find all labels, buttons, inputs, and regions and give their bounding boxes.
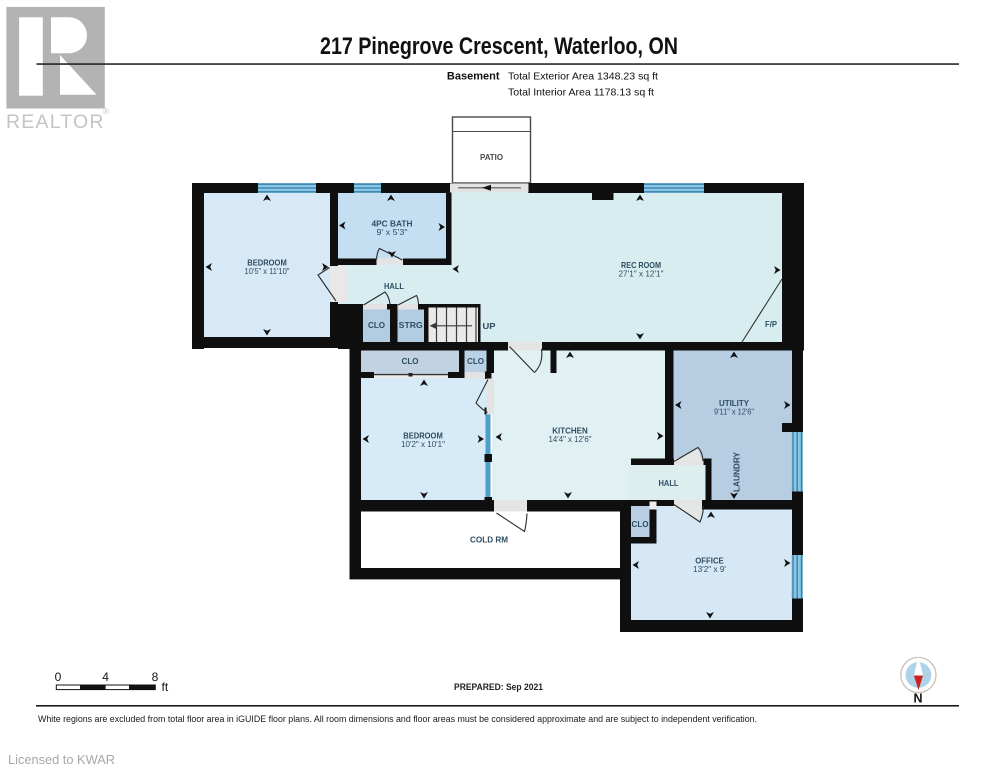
svg-text:Total Exterior Area 1348.23 sq: Total Exterior Area 1348.23 sq ft [508, 72, 658, 83]
svg-text:217 Pinegrove Crescent, Waterl: 217 Pinegrove Crescent, Waterloo, ON [320, 33, 678, 60]
svg-text:9' x 5'3": 9' x 5'3" [377, 227, 408, 237]
svg-text:PATIO: PATIO [480, 153, 503, 162]
svg-text:STRG: STRG [399, 320, 423, 330]
svg-text:ft: ft [162, 680, 169, 694]
svg-text:CLO: CLO [632, 519, 649, 529]
svg-text:White regions are excluded fro: White regions are excluded from total fl… [38, 714, 757, 724]
svg-text:CLO: CLO [402, 356, 419, 366]
svg-text:HALL: HALL [384, 281, 404, 291]
svg-text:8: 8 [152, 670, 159, 684]
svg-text:F/P: F/P [765, 320, 778, 329]
svg-text:CLO: CLO [467, 356, 484, 366]
svg-text:Basement: Basement [447, 71, 500, 83]
svg-text:LAUNDRY: LAUNDRY [732, 452, 742, 492]
svg-text:0: 0 [55, 670, 62, 684]
svg-text:10'5" x 11'10": 10'5" x 11'10" [245, 266, 290, 276]
svg-text:N: N [913, 692, 922, 706]
svg-text:®: ® [103, 107, 109, 116]
svg-text:COLD RM: COLD RM [470, 535, 508, 545]
svg-text:REALTOR: REALTOR [6, 111, 105, 133]
svg-text:Total Interior Area 1178.13 sq: Total Interior Area 1178.13 sq ft [508, 88, 654, 99]
svg-text:27'1" x 12'1": 27'1" x 12'1" [619, 268, 664, 278]
svg-text:14'4" x 12'6": 14'4" x 12'6" [549, 434, 592, 444]
svg-text:UP: UP [483, 321, 496, 331]
svg-text:CLO: CLO [368, 320, 385, 330]
svg-text:13'2" x 9': 13'2" x 9' [693, 564, 726, 574]
svg-text:PREPARED: Sep 2021: PREPARED: Sep 2021 [454, 682, 543, 692]
svg-text:Licensed to KWAR: Licensed to KWAR [8, 752, 115, 767]
svg-text:4: 4 [102, 670, 109, 684]
svg-text:9'11" x 12'6": 9'11" x 12'6" [714, 407, 754, 417]
svg-text:HALL: HALL [659, 478, 679, 488]
svg-text:10'2" x 10'1": 10'2" x 10'1" [401, 439, 445, 449]
